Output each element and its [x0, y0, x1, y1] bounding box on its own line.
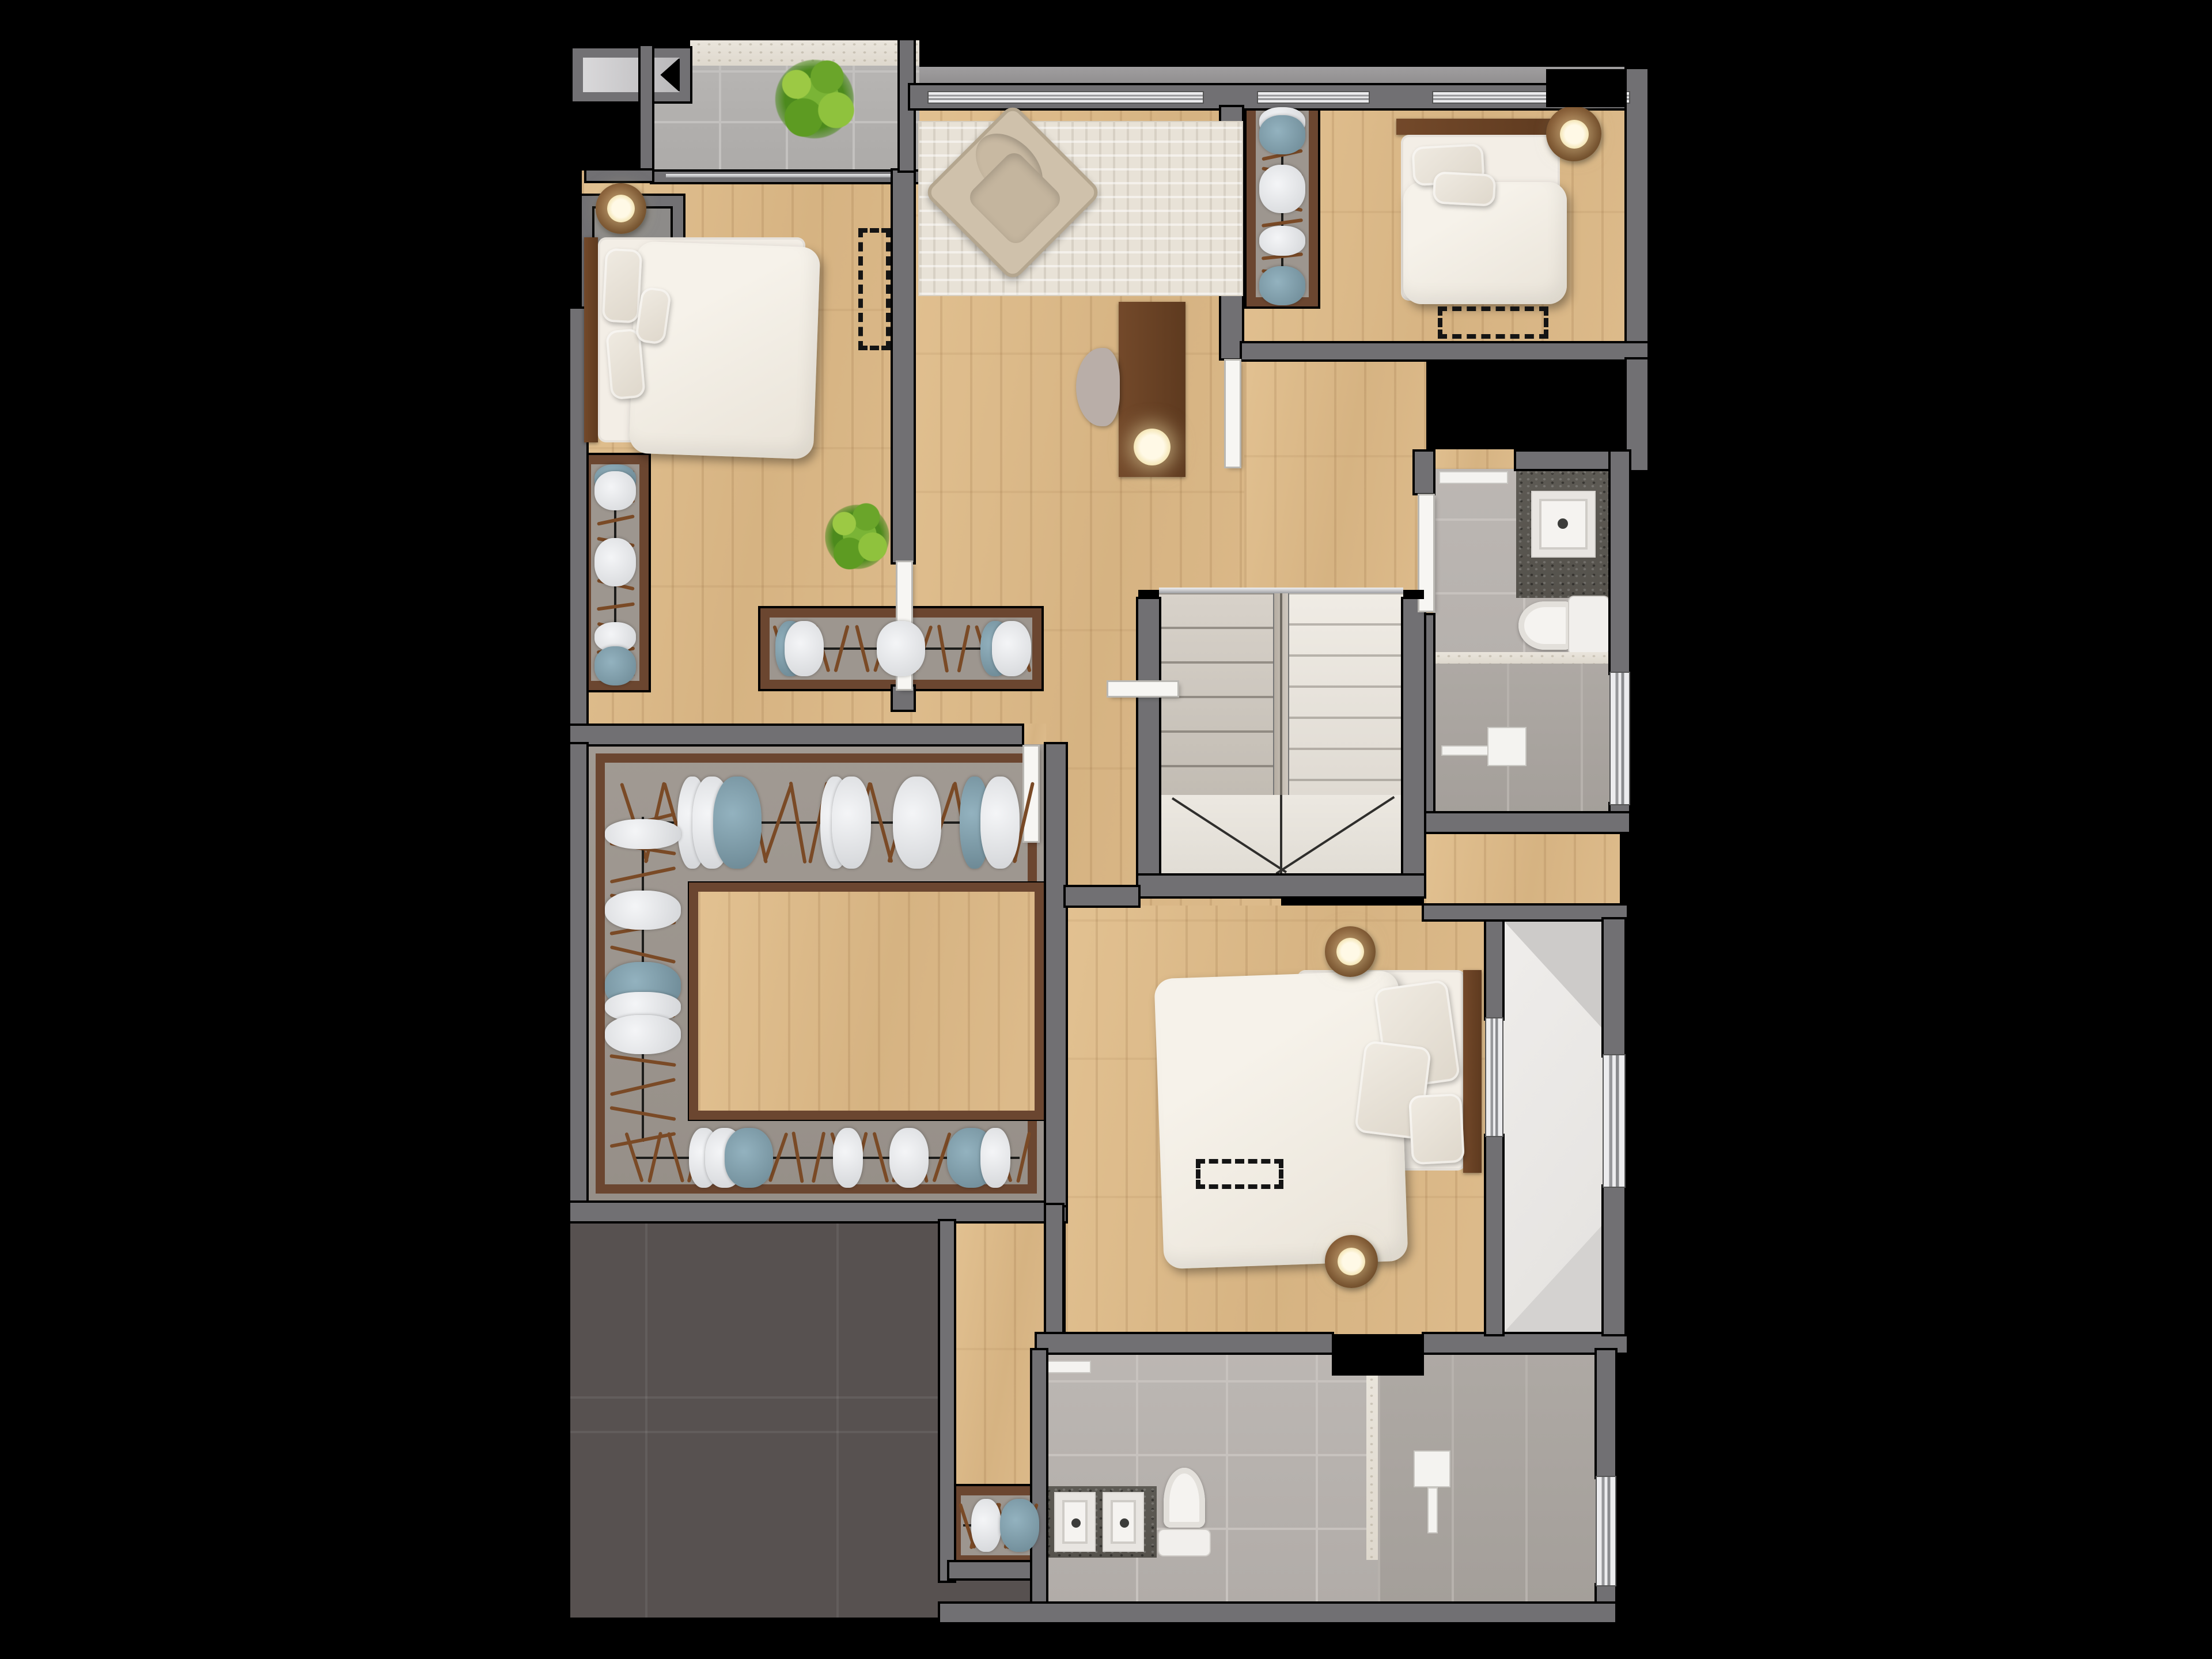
- bath1-marble-threshold: [1433, 652, 1611, 664]
- clothes-white-icon: [784, 621, 823, 676]
- black-lintel-topleft: [570, 32, 690, 46]
- door-bedroom2: [1226, 361, 1240, 467]
- bath1-shower-head: [1488, 728, 1525, 765]
- wall-bath2-bottom: [940, 1604, 1615, 1622]
- clothes-white-icon: [605, 1015, 680, 1054]
- bath1-toilet-tank: [1569, 597, 1608, 654]
- stairs-divider: [1274, 592, 1288, 802]
- wall-stairs-left: [1138, 599, 1159, 896]
- plant-balcony: [770, 53, 859, 145]
- eave-top: [910, 67, 1647, 85]
- rail-closet2: [1256, 111, 1309, 297]
- wall-balcony2-top: [1424, 906, 1627, 919]
- wall-corridor-right-outer: [1627, 359, 1647, 470]
- stairs-flight-up: [1288, 592, 1403, 795]
- bath2-shower-floor: [1378, 1350, 1597, 1604]
- clothes-white-icon: [594, 471, 637, 510]
- clothes-white-icon: [833, 1128, 863, 1187]
- bath2-sink-right-drain: [1120, 1518, 1129, 1528]
- wall-walkin-bottom: [570, 1203, 1066, 1221]
- floor-plan: [0, 0, 2212, 1659]
- rail-walkin-bottom: [622, 1124, 1032, 1191]
- clothes-white-icon: [594, 537, 637, 586]
- wall-balcony2-inner-b: [1486, 1136, 1502, 1334]
- walkin-island: [689, 882, 1044, 1120]
- wall-bath1-left-a: [1415, 452, 1433, 493]
- rail-closet1-vertical: [591, 464, 639, 681]
- dashed-marker-bedroom2: [1438, 306, 1548, 339]
- clothes-white-icon: [605, 819, 680, 849]
- clothes-blue-icon: [594, 646, 637, 685]
- lamp-bedroom2: [1560, 120, 1589, 149]
- clothes-blue-icon: [1259, 267, 1306, 306]
- wall-bedroom1-lounge-stub: [893, 687, 914, 710]
- clothes-white-icon: [971, 1499, 1001, 1552]
- wall-bath2-left: [1032, 1350, 1046, 1604]
- bath2-shelf: [1039, 1362, 1090, 1372]
- rail-walkin-left: [600, 806, 685, 1152]
- wall-balcony2-outer-b: [1604, 1187, 1624, 1334]
- bath2-marble-divider: [1366, 1359, 1378, 1560]
- clothes-blue-icon: [1259, 115, 1306, 154]
- wall-master-top: [1066, 887, 1138, 906]
- dashed-marker-bedroom1: [858, 228, 891, 350]
- clothes-white-icon: [1259, 226, 1306, 256]
- void-line-3: [570, 1396, 954, 1399]
- clothes-blue-icon: [1000, 1499, 1039, 1552]
- wall-bath2-right-a: [1597, 1350, 1615, 1477]
- bath1-sink-drain: [1558, 518, 1568, 529]
- bedM-pillow-c: [1408, 1093, 1465, 1165]
- wall-master-left-low: [1046, 1205, 1062, 1334]
- bath2-toilet-tank: [1159, 1530, 1210, 1555]
- window-bath2: [1597, 1477, 1615, 1585]
- desk-lamp: [1134, 429, 1171, 465]
- wall-stairs-bottom: [1138, 876, 1424, 896]
- wall-stairs-right: [1403, 599, 1424, 896]
- lamp-master-top: [1336, 938, 1364, 965]
- clothes-white-icon: [877, 621, 925, 676]
- clothes-blue-icon: [725, 1128, 774, 1187]
- stair-cap-right: [1403, 590, 1424, 599]
- bed2-headboard: [1396, 119, 1565, 135]
- wall-closet3-bottom: [949, 1562, 1041, 1578]
- clothes-blue-icon: [713, 776, 761, 869]
- window-bath1: [1611, 673, 1629, 804]
- wall-bedroom1-top-left: [586, 171, 652, 181]
- bath2-shower-head: [1415, 1452, 1449, 1486]
- wood-corridor-bath1: [1244, 351, 1426, 596]
- clothes-white-icon: [1259, 165, 1306, 213]
- void-line-1: [645, 1221, 647, 1618]
- plant-hall: [825, 495, 889, 578]
- wall-bath2-right-b: [1597, 1585, 1615, 1604]
- wall-bedroom1-lounge: [893, 171, 914, 562]
- screenshot-canvas: [0, 0, 2212, 1659]
- void-below-closet3: [954, 1578, 1044, 1604]
- wall-walkin-right: [1046, 744, 1066, 1205]
- clothes-white-icon: [992, 621, 1031, 676]
- stairs-winder-line-center: [1280, 795, 1282, 878]
- clothes-white-icon: [605, 891, 680, 930]
- rail-closet1-horizontal: [770, 618, 1032, 680]
- wood-bath1-doorway: [1426, 449, 1518, 470]
- bath1-shelf: [1440, 472, 1507, 483]
- wall-bedroom2-bottom: [1242, 343, 1647, 359]
- bed1-headboard: [584, 237, 598, 442]
- rail-closet3: [961, 1495, 1032, 1555]
- void-line-2: [836, 1221, 839, 1618]
- lamp-bedroom1: [607, 195, 635, 222]
- black-notch-bedroom2: [1546, 69, 1627, 107]
- clothes-white-icon: [980, 776, 1019, 869]
- wall-bedroom2-right: [1627, 69, 1647, 359]
- clothes-white-icon: [889, 1128, 929, 1187]
- void-lower-left: [570, 1221, 954, 1618]
- wall-walkin-top: [570, 726, 1022, 744]
- dashed-marker-master: [1196, 1159, 1283, 1189]
- wall-balcony2-inner-a: [1486, 906, 1502, 1018]
- bed2-pillow-b: [1433, 171, 1497, 207]
- stair-cap-left: [1138, 590, 1159, 599]
- wall-bath1-right-a: [1611, 452, 1629, 673]
- wall-bath1-bottom: [1415, 813, 1629, 832]
- wood-walkin-doorway: [1018, 724, 1046, 747]
- bed1-duvet: [629, 241, 821, 460]
- wall-corridor-bottom-left: [940, 1221, 954, 1581]
- wall-walkin-left: [570, 744, 586, 1205]
- bed1-pillow-a: [602, 248, 643, 323]
- wall-master-bottom-a: [1037, 1334, 1332, 1353]
- window-top-2: [1258, 92, 1369, 103]
- bath2-sink-left-drain: [1071, 1518, 1081, 1528]
- lamp-master-bottom: [1338, 1248, 1365, 1275]
- window-top-1: [929, 92, 1203, 103]
- clothes-white-icon: [893, 776, 942, 869]
- bedM-headboard: [1463, 970, 1482, 1173]
- door-landing: [1108, 682, 1177, 696]
- window-balcony2: [1604, 1055, 1624, 1187]
- wall-balcony2-outer-a: [1604, 919, 1624, 1055]
- bath2-shower-arm: [1429, 1488, 1437, 1532]
- door-master-balcony-glass: [1486, 1018, 1502, 1136]
- stairs-rail-top: [1159, 588, 1403, 593]
- black-doorway-bath2: [1332, 1334, 1424, 1376]
- window-balcony1-track: [666, 174, 906, 177]
- bath1-toilet-bowl: [1518, 601, 1571, 650]
- clothes-white-icon: [832, 776, 872, 869]
- void-line-4: [570, 1431, 954, 1433]
- clothes-white-icon: [980, 1128, 1010, 1187]
- wall-balcony1-left: [641, 40, 652, 181]
